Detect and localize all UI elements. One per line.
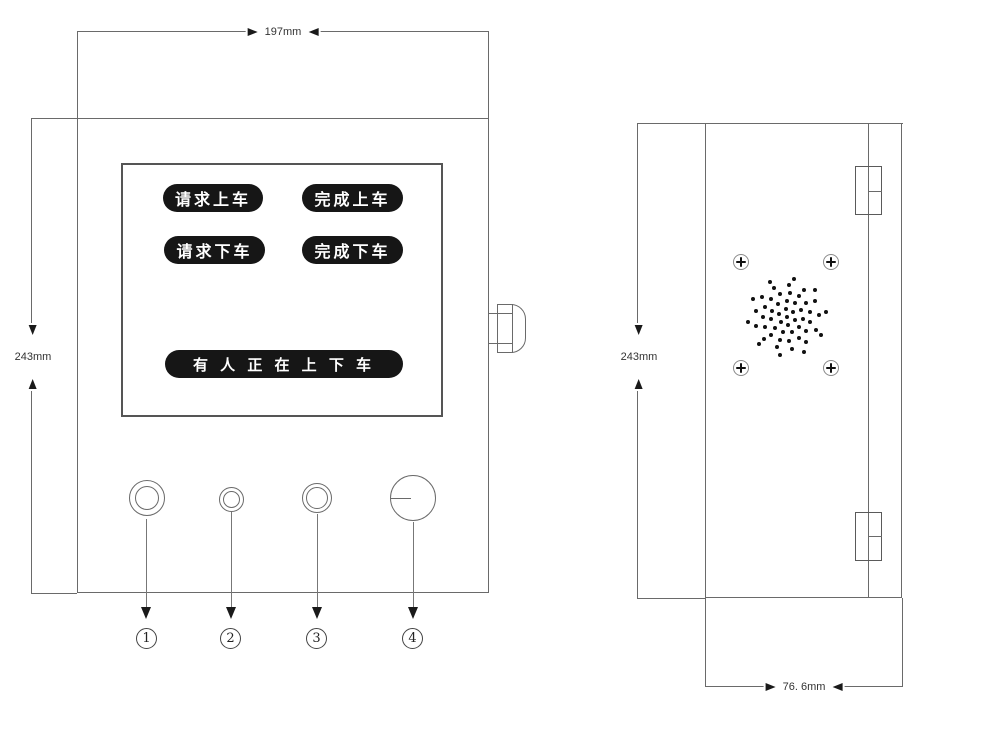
speaker-hole bbox=[781, 330, 785, 334]
speaker-hole bbox=[763, 325, 767, 329]
speaker-hole bbox=[813, 299, 817, 303]
speaker-hole bbox=[790, 330, 794, 334]
speaker-hole bbox=[790, 347, 794, 351]
speaker-hole bbox=[761, 315, 765, 319]
speaker-hole bbox=[768, 280, 772, 284]
speaker-hole bbox=[808, 310, 812, 314]
depth-dimension-label: 76. 6mm bbox=[764, 680, 845, 694]
speaker-hole bbox=[819, 333, 823, 337]
speaker-hole bbox=[778, 292, 782, 296]
speaker-grille bbox=[737, 267, 837, 367]
speaker-hole bbox=[785, 299, 789, 303]
speaker-hole bbox=[779, 320, 783, 324]
speaker-hole bbox=[773, 326, 777, 330]
speaker-hole bbox=[801, 317, 805, 321]
speaker-hole bbox=[802, 288, 806, 292]
speaker-hole bbox=[787, 339, 791, 343]
dimension-arrow-up-icon bbox=[635, 379, 643, 389]
speaker-hole bbox=[788, 291, 792, 295]
speaker-hole bbox=[784, 307, 788, 311]
speaker-hole bbox=[804, 329, 808, 333]
speaker-hole bbox=[746, 320, 750, 324]
speaker-hole bbox=[775, 345, 779, 349]
speaker-hole bbox=[760, 295, 764, 299]
side-bottom-extension-line bbox=[637, 598, 705, 599]
speaker-hole bbox=[813, 288, 817, 292]
speaker-hole bbox=[797, 294, 801, 298]
technical-drawing-canvas: 197mm 243mm 请求上车 完成上车 请求下车 完成下车 有 人 正 在 … bbox=[0, 0, 1000, 734]
screw-cross-horizontal bbox=[736, 367, 746, 369]
speaker-hole bbox=[754, 309, 758, 313]
dimension-arrow-left-icon bbox=[832, 683, 842, 691]
speaker-hole bbox=[799, 308, 803, 312]
speaker-hole bbox=[814, 328, 818, 332]
screw-cross-horizontal bbox=[736, 261, 746, 263]
speaker-hole bbox=[785, 315, 789, 319]
speaker-hole bbox=[797, 325, 801, 329]
speaker-hole bbox=[787, 283, 791, 287]
speaker-hole bbox=[786, 323, 790, 327]
speaker-hole bbox=[762, 337, 766, 341]
speaker-hole bbox=[754, 324, 758, 328]
hinge-bottom-divider-line bbox=[868, 536, 882, 537]
speaker-hole bbox=[793, 301, 797, 305]
screw-cross-horizontal bbox=[826, 367, 836, 369]
speaker-hole bbox=[778, 338, 782, 342]
speaker-hole bbox=[804, 301, 808, 305]
speaker-hole bbox=[751, 297, 755, 301]
side-view: 243mm 76. 6mm bbox=[0, 0, 1000, 734]
hinge-top-divider-line bbox=[868, 191, 882, 192]
speaker-hole bbox=[793, 318, 797, 322]
speaker-hole bbox=[776, 302, 780, 306]
side-top-extension-line bbox=[637, 123, 903, 124]
speaker-hole bbox=[802, 350, 806, 354]
dimension-arrow-right-icon bbox=[766, 683, 776, 691]
depth-extension-line-left bbox=[705, 598, 706, 687]
depth-dimension-text: 76. 6mm bbox=[783, 681, 826, 693]
side-height-dimension-label: 243mm bbox=[620, 323, 659, 391]
speaker-hole bbox=[778, 353, 782, 357]
speaker-hole bbox=[792, 277, 796, 281]
speaker-hole bbox=[808, 320, 812, 324]
side-height-dimension-text: 243mm bbox=[621, 351, 658, 363]
speaker-hole bbox=[797, 336, 801, 340]
speaker-hole bbox=[791, 310, 795, 314]
speaker-hole bbox=[769, 297, 773, 301]
speaker-hole bbox=[817, 313, 821, 317]
speaker-hole bbox=[824, 310, 828, 314]
screw-cross-horizontal bbox=[826, 261, 836, 263]
dimension-arrow-down-icon bbox=[635, 325, 643, 335]
depth-extension-line-right bbox=[902, 598, 903, 687]
speaker-hole bbox=[777, 312, 781, 316]
speaker-hole bbox=[804, 340, 808, 344]
speaker-hole bbox=[769, 317, 773, 321]
speaker-hole bbox=[769, 333, 773, 337]
speaker-hole bbox=[763, 305, 767, 309]
speaker-hole bbox=[757, 342, 761, 346]
speaker-hole bbox=[772, 286, 776, 290]
speaker-hole bbox=[770, 309, 774, 313]
